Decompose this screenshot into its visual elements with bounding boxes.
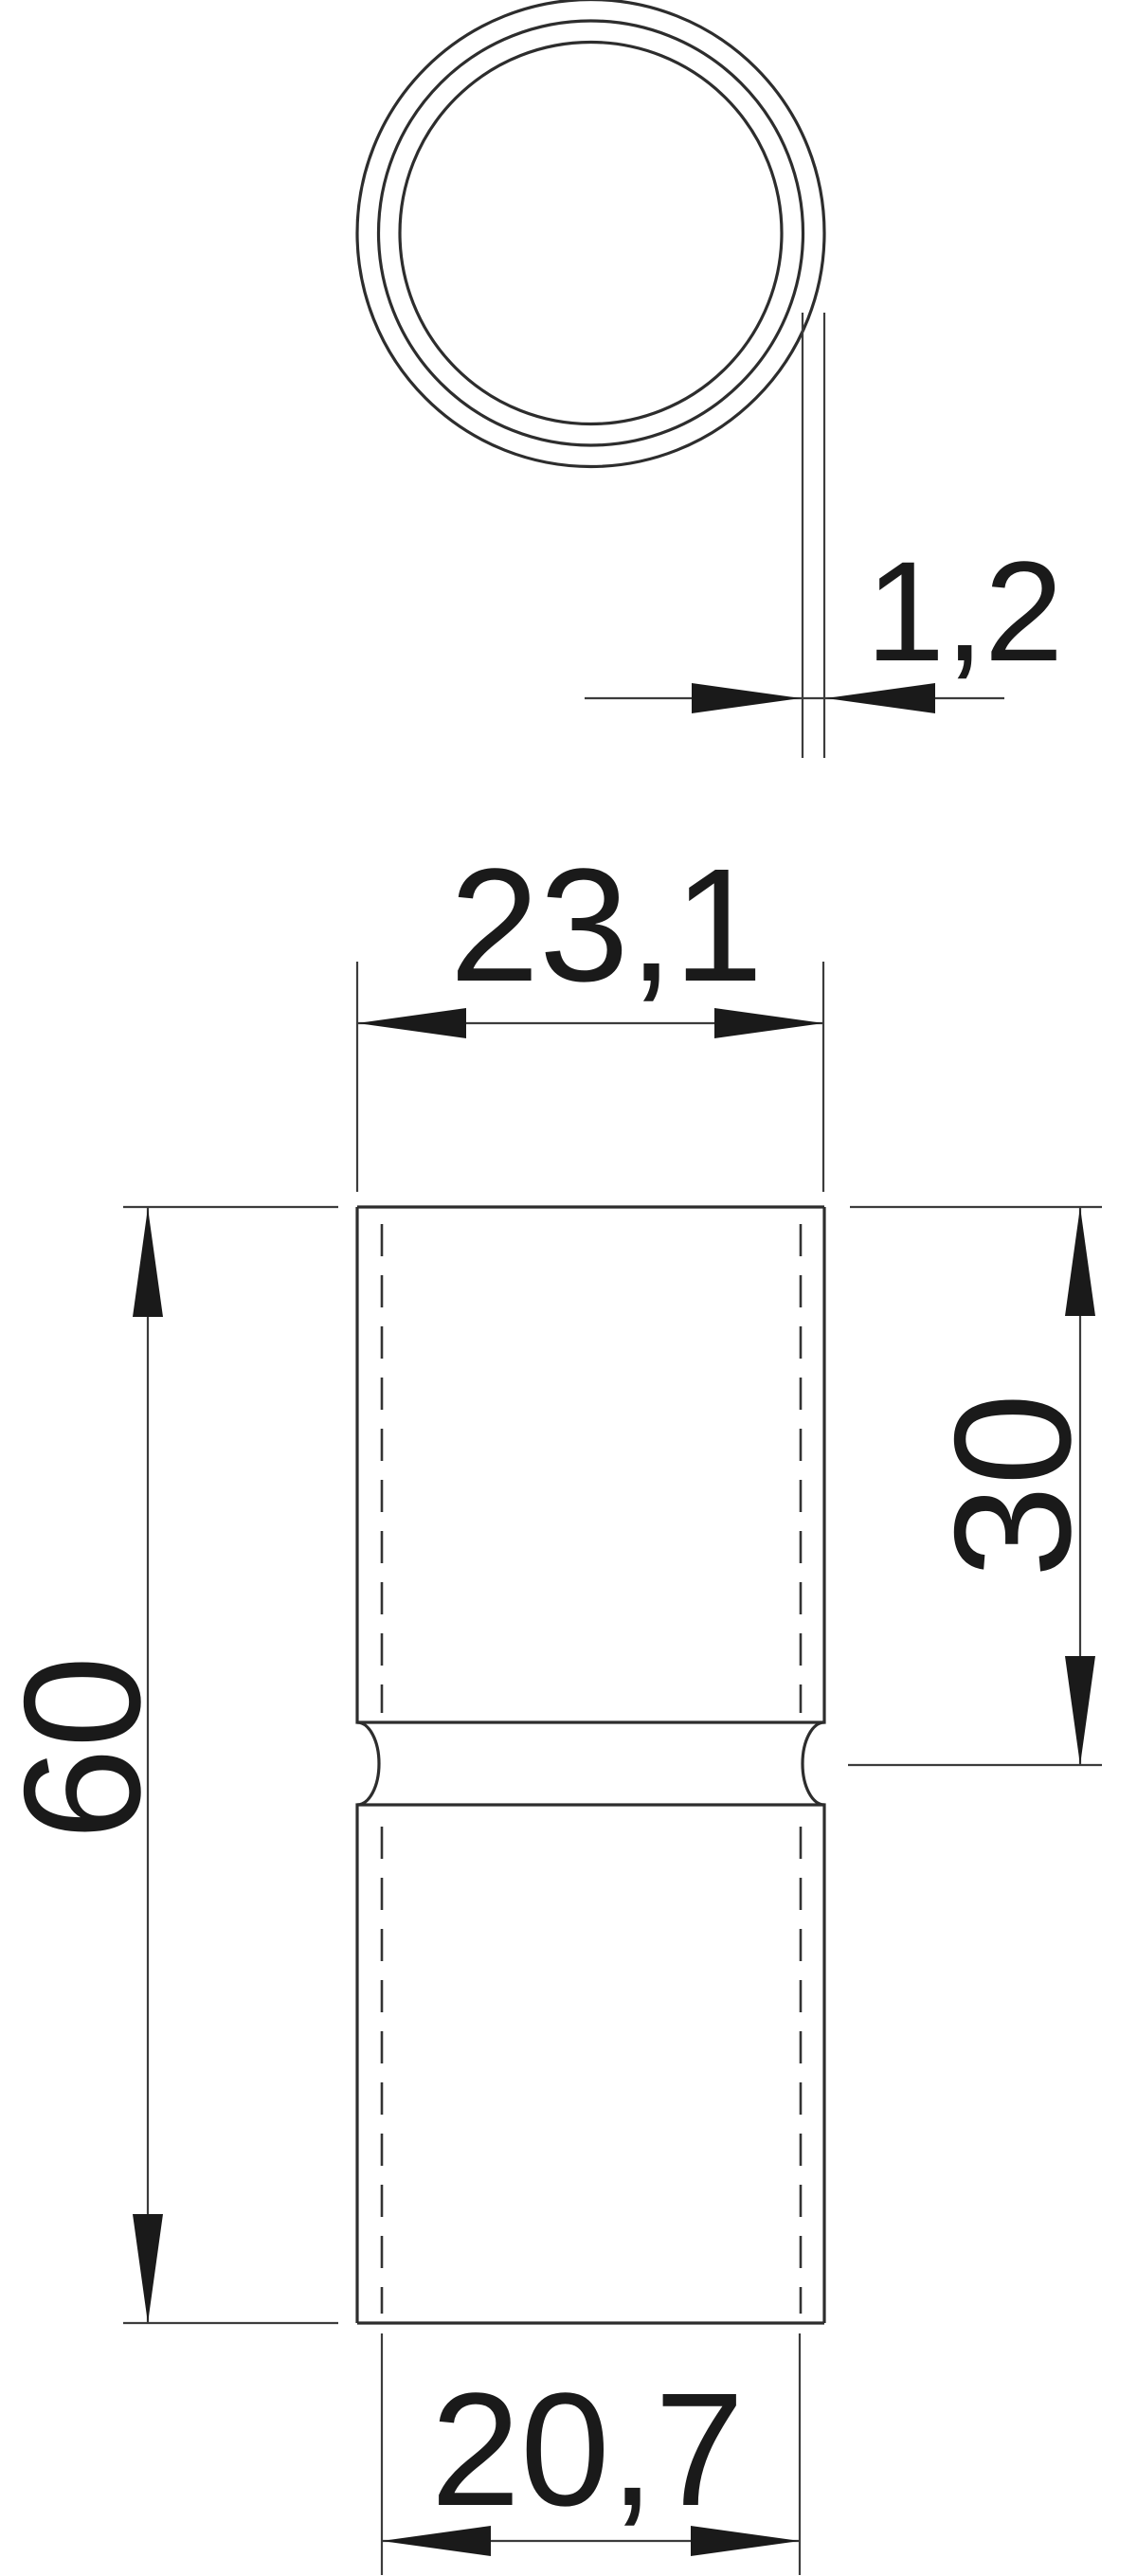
tube-right-edge bbox=[803, 1207, 824, 2323]
dim-wall-thickness: 1,2 bbox=[585, 313, 1063, 758]
dim-label-upper-section: 30 bbox=[921, 1394, 1106, 1578]
dim-label-outer-width: 23,1 bbox=[450, 836, 764, 1016]
top-view bbox=[357, 0, 824, 467]
dim-arrow-up bbox=[1065, 1207, 1095, 1316]
dim-arrow-up bbox=[133, 1208, 163, 1317]
dim-overall-length: 60 bbox=[0, 1207, 338, 2323]
inner-diameter-circle bbox=[400, 43, 782, 424]
front-view bbox=[357, 1207, 824, 2323]
dim-label-wall-thickness: 1,2 bbox=[866, 531, 1064, 691]
dim-arrow-down bbox=[1065, 1656, 1095, 1765]
tube-left-edge bbox=[357, 1207, 379, 2323]
technical-drawing: 1,2 23,1 60 30 bbox=[0, 0, 1137, 2576]
dim-arrow-down bbox=[133, 2214, 163, 2323]
dim-label-overall-length: 60 bbox=[0, 1656, 175, 1841]
dim-inner-width: 20,7 bbox=[382, 2333, 800, 2575]
drawing-canvas: 1,2 23,1 60 30 bbox=[0, 0, 1137, 2576]
dim-label-inner-width: 20,7 bbox=[431, 2360, 745, 2540]
dim-outer-width: 23,1 bbox=[357, 836, 823, 1192]
dim-arrow-right bbox=[692, 683, 801, 713]
middle-diameter-circle bbox=[379, 21, 803, 445]
outer-diameter-circle bbox=[357, 0, 824, 467]
dim-upper-section: 30 bbox=[848, 1207, 1106, 1765]
